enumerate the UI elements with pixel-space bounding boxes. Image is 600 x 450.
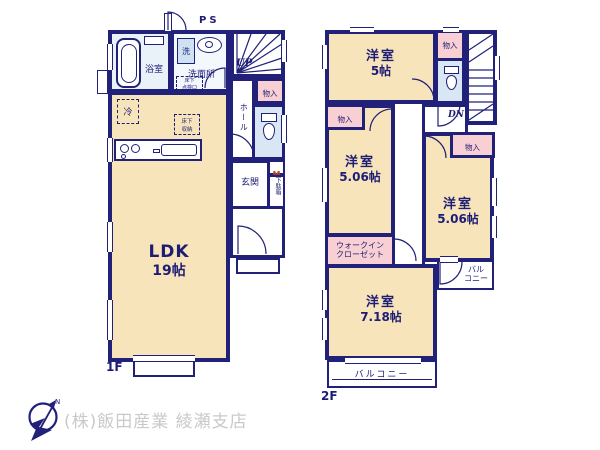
- bedroom-3-label: 洋室 5.06帖: [426, 198, 490, 227]
- bedroom-2-size: 5.06帖: [329, 171, 391, 185]
- toilet-1f-tank: [261, 113, 277, 122]
- kitchen-counter: [114, 139, 202, 161]
- closet-2f-right-label: 物入: [465, 143, 480, 152]
- washer-label: 洗: [182, 47, 190, 56]
- bedroom-3-name: 洋室: [426, 198, 490, 213]
- stairs-1f: UP: [230, 30, 285, 78]
- closet-2f-top: 物入: [435, 30, 465, 61]
- hall-2f: [392, 101, 425, 267]
- washroom-sink-basin: [205, 41, 213, 48]
- balcony-side-label: バル コニー: [464, 265, 488, 283]
- ldk-size: 19帖: [112, 263, 226, 279]
- window: [440, 256, 458, 263]
- shoe-box-label: 下駄箱: [273, 177, 280, 195]
- bedroom-2-label: 洋室 5.06帖: [329, 156, 391, 185]
- ps-label: PS: [199, 15, 220, 27]
- window: [107, 138, 113, 162]
- shoe-box: 下駄箱: [268, 175, 285, 209]
- bedroom-1: 洋室 5帖: [325, 30, 437, 104]
- sliding-window: [345, 357, 421, 364]
- compass-icon: N: [24, 396, 66, 446]
- dn-label: DN: [448, 110, 464, 120]
- ldk-terrace-step: [133, 360, 195, 377]
- fridge-label: 冷: [123, 108, 132, 118]
- washroom-sink: [197, 37, 222, 53]
- meter-box: M: [268, 160, 285, 175]
- entrance-porch: [230, 206, 285, 258]
- kitchen-faucet: [153, 149, 160, 153]
- bedroom-1-name: 洋室: [329, 50, 433, 65]
- walk-in-closet: ウォークイン クローゼット: [325, 234, 395, 267]
- closet-1f: 物入: [255, 78, 285, 104]
- window: [107, 44, 113, 70]
- toilet-2f-bowl: [446, 75, 457, 90]
- ldk-name: LDK: [112, 243, 226, 263]
- floor1-label: 1F: [106, 361, 123, 375]
- window: [107, 222, 113, 252]
- bath-counter: [144, 36, 164, 45]
- underfloor-hatch: 床下 点検口: [176, 76, 203, 91]
- bedroom-4-label: 洋室 7.18帖: [329, 296, 433, 325]
- bedroom-3-size: 5.06帖: [426, 213, 490, 227]
- underfloor-storage: 床下 収納: [174, 114, 200, 135]
- window: [281, 40, 287, 62]
- company-name: (株)飯田産業 綾瀬支店: [64, 413, 248, 433]
- ldk-label: LDK 19帖: [112, 243, 226, 279]
- water-heater-unit: [97, 70, 108, 94]
- up-label: UP: [236, 58, 252, 70]
- floorplan-canvas: PS 浴室 洗 洗面所 床下 点検口 UP 物入 ホール: [0, 0, 600, 450]
- underfloor-hatch-line2: 点検口: [177, 84, 202, 91]
- entrance-label: 玄関: [241, 178, 259, 188]
- closet-1f-label: 物入: [263, 89, 278, 98]
- toilet-2f-tank: [444, 66, 459, 74]
- balcony-main: バルコニー: [327, 360, 437, 388]
- bathroom: 浴室: [108, 30, 172, 93]
- closet-2f-left: 物入: [325, 104, 365, 130]
- bathtub-inner: [121, 44, 137, 83]
- bedroom-3: 洋室 5.06帖 物入: [422, 132, 494, 262]
- exterior-door-leaf: [164, 13, 172, 32]
- kitchen-sink: [161, 144, 197, 156]
- bathroom-label: 浴室: [145, 65, 163, 75]
- window: [494, 56, 500, 80]
- window: [443, 27, 459, 33]
- underfloor-hatch-line1: 床下: [177, 77, 202, 84]
- window: [322, 45, 328, 69]
- entrance-step: [236, 258, 280, 274]
- window: [322, 318, 328, 340]
- balcony-side: バル コニー: [437, 260, 494, 290]
- stove-burner-2: [131, 144, 140, 153]
- bedroom-1-size: 5帖: [329, 65, 433, 79]
- bedroom-1-label: 洋室 5帖: [329, 50, 433, 79]
- fridge-space: 冷: [117, 99, 139, 124]
- balcony-side-line1: バル: [464, 265, 488, 274]
- window: [491, 216, 497, 238]
- balcony-side-line2: コニー: [464, 274, 488, 283]
- closet-2f-top-label: 物入: [443, 41, 458, 50]
- window: [281, 115, 287, 143]
- ldk: 冷 床下 収納 LDK 19帖: [108, 91, 230, 362]
- compass-north-letter: N: [55, 398, 60, 406]
- toilet-2f: [435, 58, 465, 104]
- wic-line2: クローゼット: [328, 250, 392, 259]
- stove-burner-3: [121, 154, 126, 159]
- bedroom-2-name: 洋室: [329, 156, 391, 171]
- hall-label: ホール: [239, 103, 248, 133]
- entrance: 玄関: [230, 160, 270, 209]
- window: [322, 168, 328, 202]
- bedroom-4-size: 7.18帖: [329, 311, 433, 325]
- window: [107, 300, 113, 340]
- bedroom-4-name: 洋室: [329, 296, 433, 311]
- stove-burner-1: [120, 144, 129, 153]
- floorplan-lines: [0, 0, 600, 450]
- floor2-label: 2F: [321, 390, 338, 404]
- bedroom-4: 洋室 7.18帖: [325, 264, 437, 360]
- wic-line1: ウォークイン: [328, 241, 392, 250]
- washing-machine: 洗: [177, 38, 195, 64]
- toilet-1f-bowl: [263, 123, 275, 140]
- sliding-window: [133, 355, 195, 362]
- underfloor-storage-line1: 床下: [175, 117, 199, 125]
- window: [350, 27, 374, 33]
- washroom: 洗 洗面所 床下 点検口: [170, 30, 230, 93]
- stairs-2f: [465, 30, 497, 125]
- window: [322, 290, 328, 310]
- closet-2f-right: 物入: [450, 132, 495, 158]
- balcony-railing: [332, 379, 432, 384]
- window: [491, 178, 497, 206]
- bathtub: [116, 38, 141, 88]
- closet-2f-left-label: 物入: [338, 115, 353, 124]
- underfloor-storage-line2: 収納: [175, 125, 199, 133]
